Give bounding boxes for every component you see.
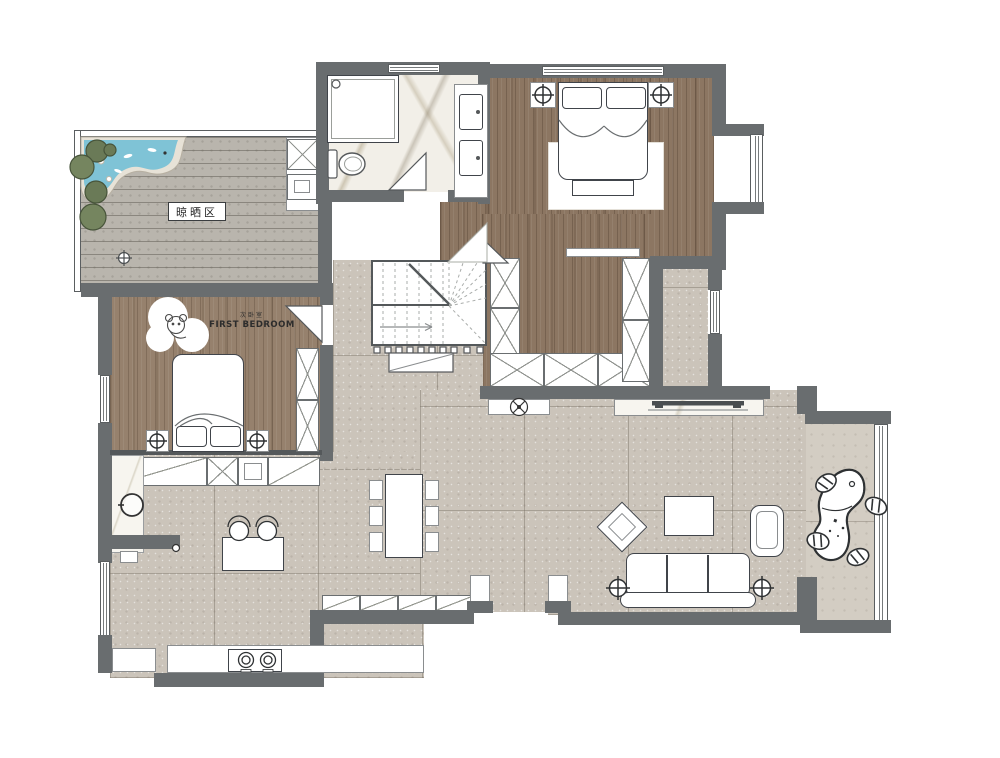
pond-stone-2 (107, 177, 112, 182)
plant-bush-3 (85, 181, 107, 203)
leaf-stone-4 (845, 546, 871, 569)
leaf-stone-2 (863, 494, 890, 518)
table-lamp-b1-right (247, 431, 267, 451)
plant-bush-5 (104, 144, 116, 156)
kitchen-chairs (228, 516, 278, 541)
ceiling-lamp-1 (606, 576, 630, 600)
staircase-detail (372, 263, 486, 372)
table-lamp-b1-left (147, 431, 167, 451)
counter-knob (173, 545, 180, 552)
fish-4 (163, 151, 166, 154)
stair-treads (383, 263, 486, 344)
floor-plan-canvas: 晾晒区 (0, 0, 1000, 758)
shower-head-icon (332, 80, 340, 88)
toilet-tank (328, 150, 337, 178)
console-plant-icon (511, 399, 528, 416)
floor-break-triangle (448, 223, 487, 262)
floor-drain-icon (116, 250, 132, 266)
koala-rug-icon (146, 297, 209, 352)
plant-bush-2 (70, 155, 94, 179)
bed-blanket-arcs (175, 120, 647, 426)
sink-basin-icon (121, 494, 143, 516)
lineart-overlay (0, 0, 1000, 758)
tv-icon (648, 401, 748, 410)
ceiling-lamp-2 (750, 576, 774, 600)
door-swing-bathroom (389, 153, 426, 190)
vanity-faucet-2 (476, 156, 480, 160)
stair-arrow-icon (380, 324, 432, 331)
plant-bush-4 (80, 204, 106, 230)
stair-balusters (374, 347, 483, 353)
vanity-faucet-1 (476, 110, 480, 114)
door-swing-first-bedroom (286, 306, 322, 342)
stove-burner-rings (239, 653, 276, 673)
table-lamp-master-left (532, 84, 554, 106)
table-lamp-master-right (650, 84, 672, 106)
